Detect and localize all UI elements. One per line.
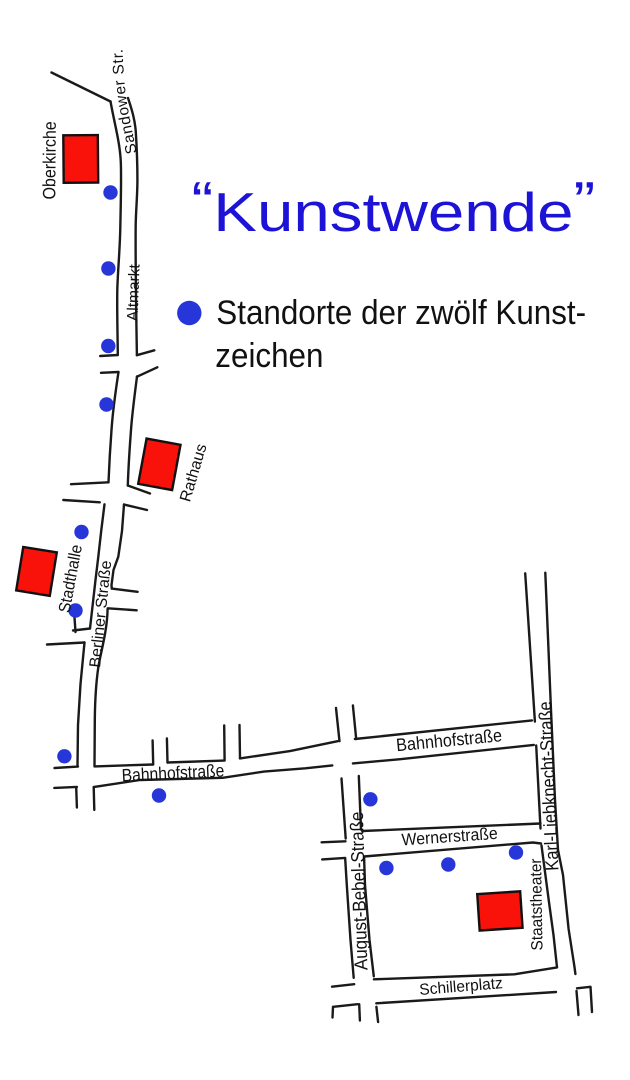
svg-text:Bahnhofstraße: Bahnhofstraße bbox=[121, 761, 225, 786]
svg-text:Staatstheater: Staatstheater bbox=[528, 858, 547, 951]
svg-text:Stadthalle: Stadthalle bbox=[55, 543, 86, 614]
svg-text:zeichen: zeichen bbox=[215, 336, 323, 375]
svg-text:Altmarkt: Altmarkt bbox=[125, 263, 144, 321]
svg-text:Oberkirche: Oberkirche bbox=[39, 121, 60, 199]
svg-text:“Kunstwende”: “Kunstwende” bbox=[192, 170, 596, 243]
svg-text:Rathaus: Rathaus bbox=[177, 442, 210, 504]
svg-text:Standorte der zwölf Kunst-: Standorte der zwölf Kunst- bbox=[216, 293, 586, 332]
svg-text:Sandower Str.: Sandower Str. bbox=[110, 49, 141, 156]
svg-text:Karl-Liebknecht-Straße: Karl-Liebknecht-Straße bbox=[534, 701, 562, 871]
svg-text:August-Bebel-Straße: August-Bebel-Straße bbox=[346, 811, 372, 970]
